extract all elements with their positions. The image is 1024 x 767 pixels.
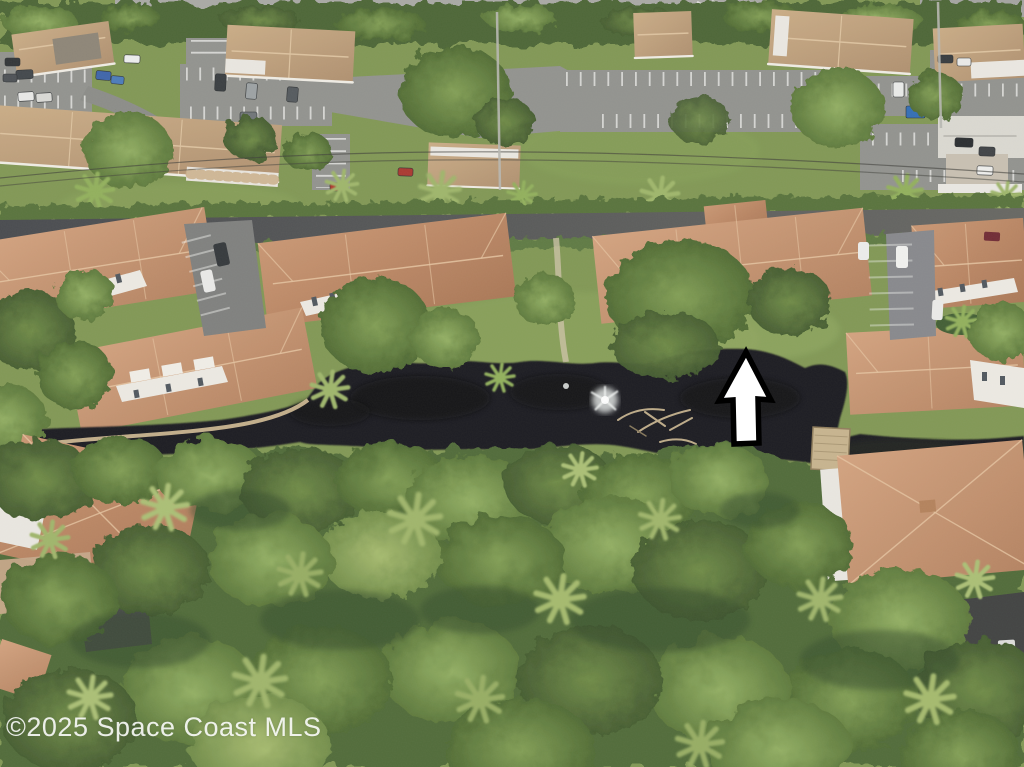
aerial-scene — [0, 0, 1024, 767]
haze-overlay — [0, 0, 1024, 767]
aerial-photo: ©2025 Space Coast MLS — [0, 0, 1024, 767]
